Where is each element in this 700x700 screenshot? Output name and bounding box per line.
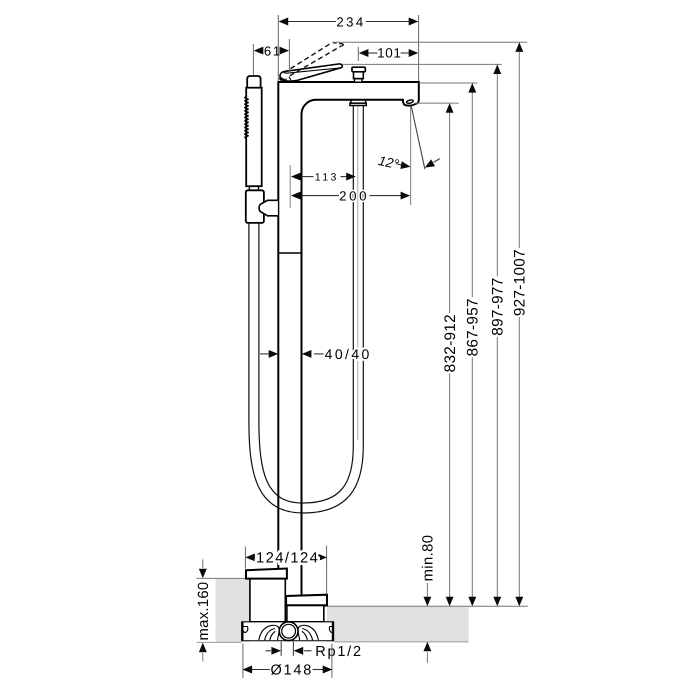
svg-text:897-977: 897-977 (490, 277, 507, 335)
svg-text:867-957: 867-957 (465, 298, 482, 356)
svg-text:124/124: 124/124 (256, 550, 319, 566)
svg-text:min.80: min.80 (421, 535, 437, 582)
svg-text:927-1007: 927-1007 (512, 249, 529, 316)
svg-text:max.160: max.160 (196, 582, 212, 641)
svg-text:832-912: 832-912 (442, 314, 459, 372)
svg-text:40/40: 40/40 (325, 346, 372, 362)
svg-text:61: 61 (264, 43, 282, 58)
svg-text:234: 234 (336, 14, 365, 29)
svg-text:101: 101 (377, 46, 401, 61)
svg-text:113: 113 (315, 171, 339, 183)
svg-text:Rp1/2: Rp1/2 (315, 644, 363, 660)
svg-text:200: 200 (339, 188, 369, 203)
svg-text:12°: 12° (377, 153, 401, 172)
svg-text:Ø148: Ø148 (270, 662, 313, 678)
